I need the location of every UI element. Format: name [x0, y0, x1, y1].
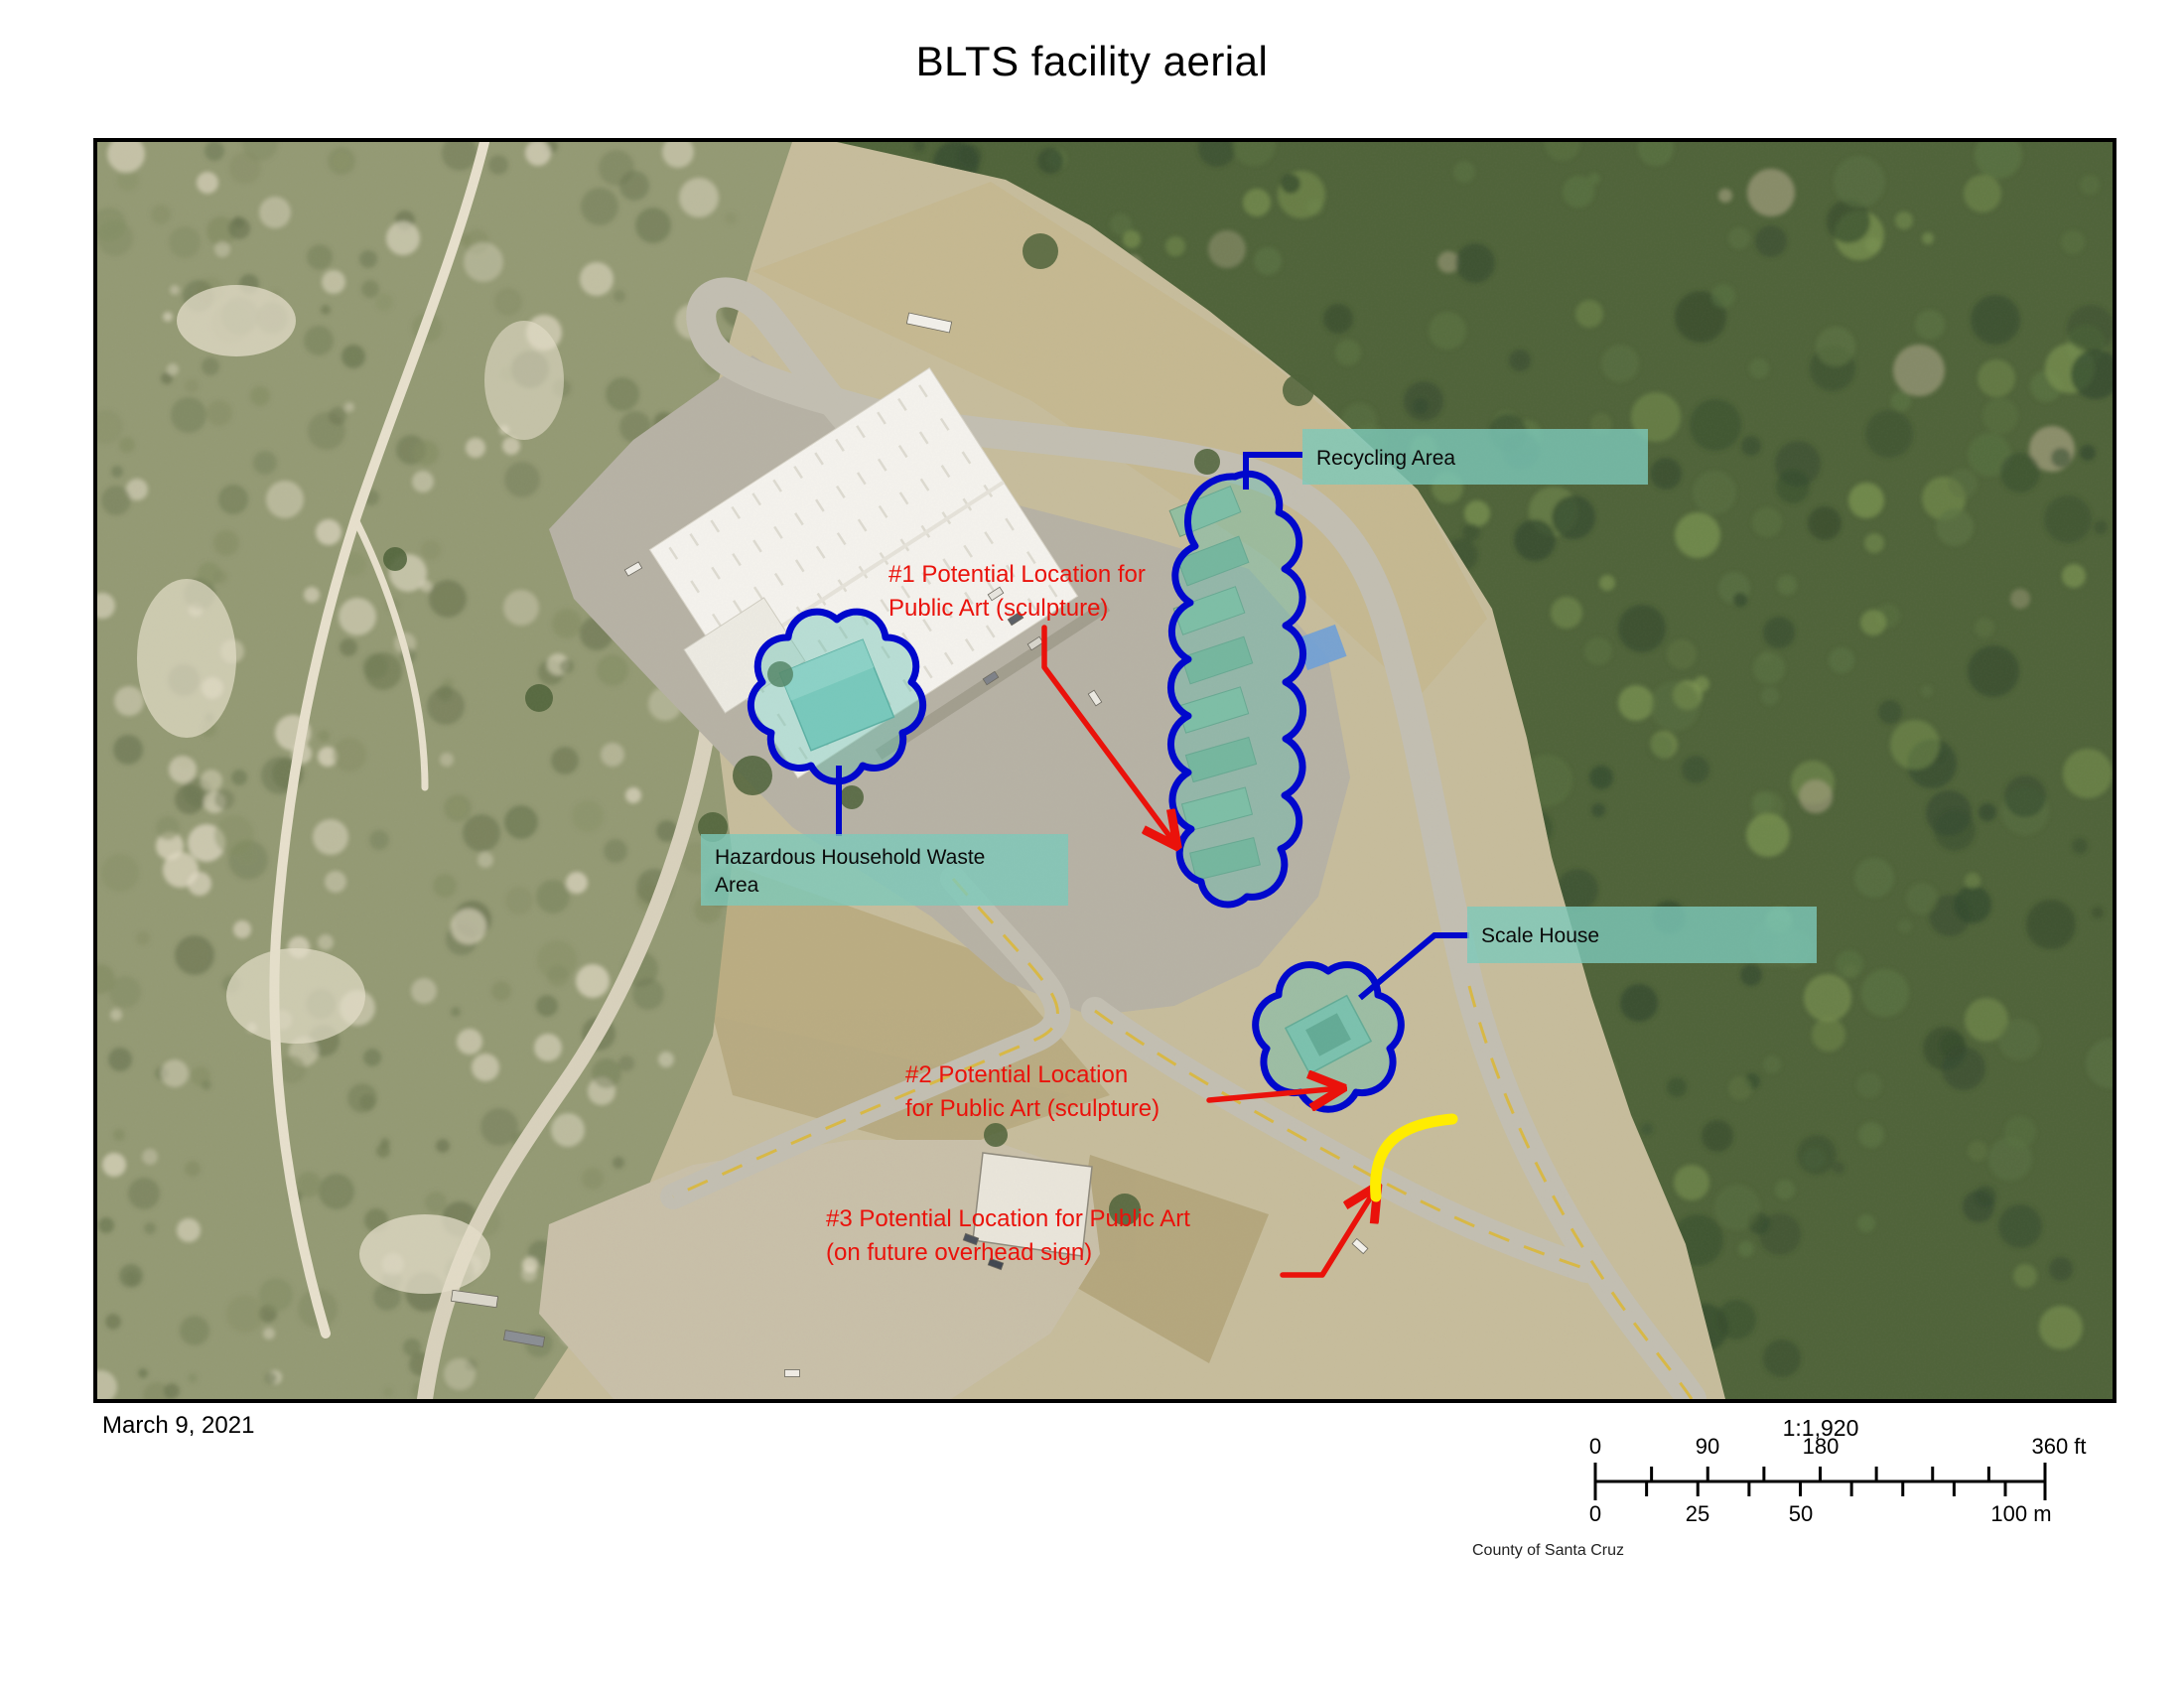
- date-label: March 9, 2021: [102, 1412, 254, 1440]
- scale-m-100: 100 m: [1990, 1501, 2051, 1526]
- annotation-2-line1: #2 Potential Location: [905, 1061, 1128, 1088]
- scale-ft-90: 90: [1696, 1434, 1719, 1459]
- revision-cloud-hhw: [751, 612, 922, 781]
- annotation-1-line1: #1 Potential Location for: [888, 561, 1146, 588]
- label-text-recycling: Recycling Area: [1316, 447, 1455, 470]
- page: BLTS facility aerial: [0, 0, 2184, 1688]
- scale-ticks: [1595, 1463, 2045, 1500]
- map-credit: County of Santa Cruz: [1472, 1542, 1624, 1559]
- scale-ft-0: 0: [1589, 1434, 1601, 1459]
- scale-ft-180: 180: [1803, 1434, 1840, 1459]
- label-text-hhw-line2: Area: [715, 874, 759, 897]
- scalebar: 1:1,920 0 90 180 360 ft 0 25 50 100 m Co…: [1430, 1392, 2164, 1581]
- annotation-2-line2: for Public Art (sculpture): [905, 1095, 1160, 1122]
- scale-m-50: 50: [1789, 1501, 1813, 1526]
- scale-ft-360: 360 ft: [2031, 1434, 2086, 1459]
- annotation-1-line2: Public Art (sculpture): [888, 595, 1108, 622]
- scale-m-0: 0: [1589, 1501, 1601, 1526]
- annotation-3-line2: (on future overhead sign): [826, 1239, 1092, 1266]
- map-frame: Recycling Area Hazardous Household Waste…: [93, 138, 2116, 1403]
- annotation-3-line1: #3 Potential Location for Public Art: [826, 1205, 1190, 1232]
- aerial-map: Recycling Area Hazardous Household Waste…: [97, 142, 2113, 1399]
- revision-cloud-recycling: [1170, 474, 1302, 905]
- label-text-hhw-line1: Hazardous Household Waste: [715, 846, 985, 869]
- label-text-scale-house: Scale House: [1481, 924, 1599, 947]
- scale-m-25: 25: [1686, 1501, 1709, 1526]
- page-title: BLTS facility aerial: [0, 38, 2184, 85]
